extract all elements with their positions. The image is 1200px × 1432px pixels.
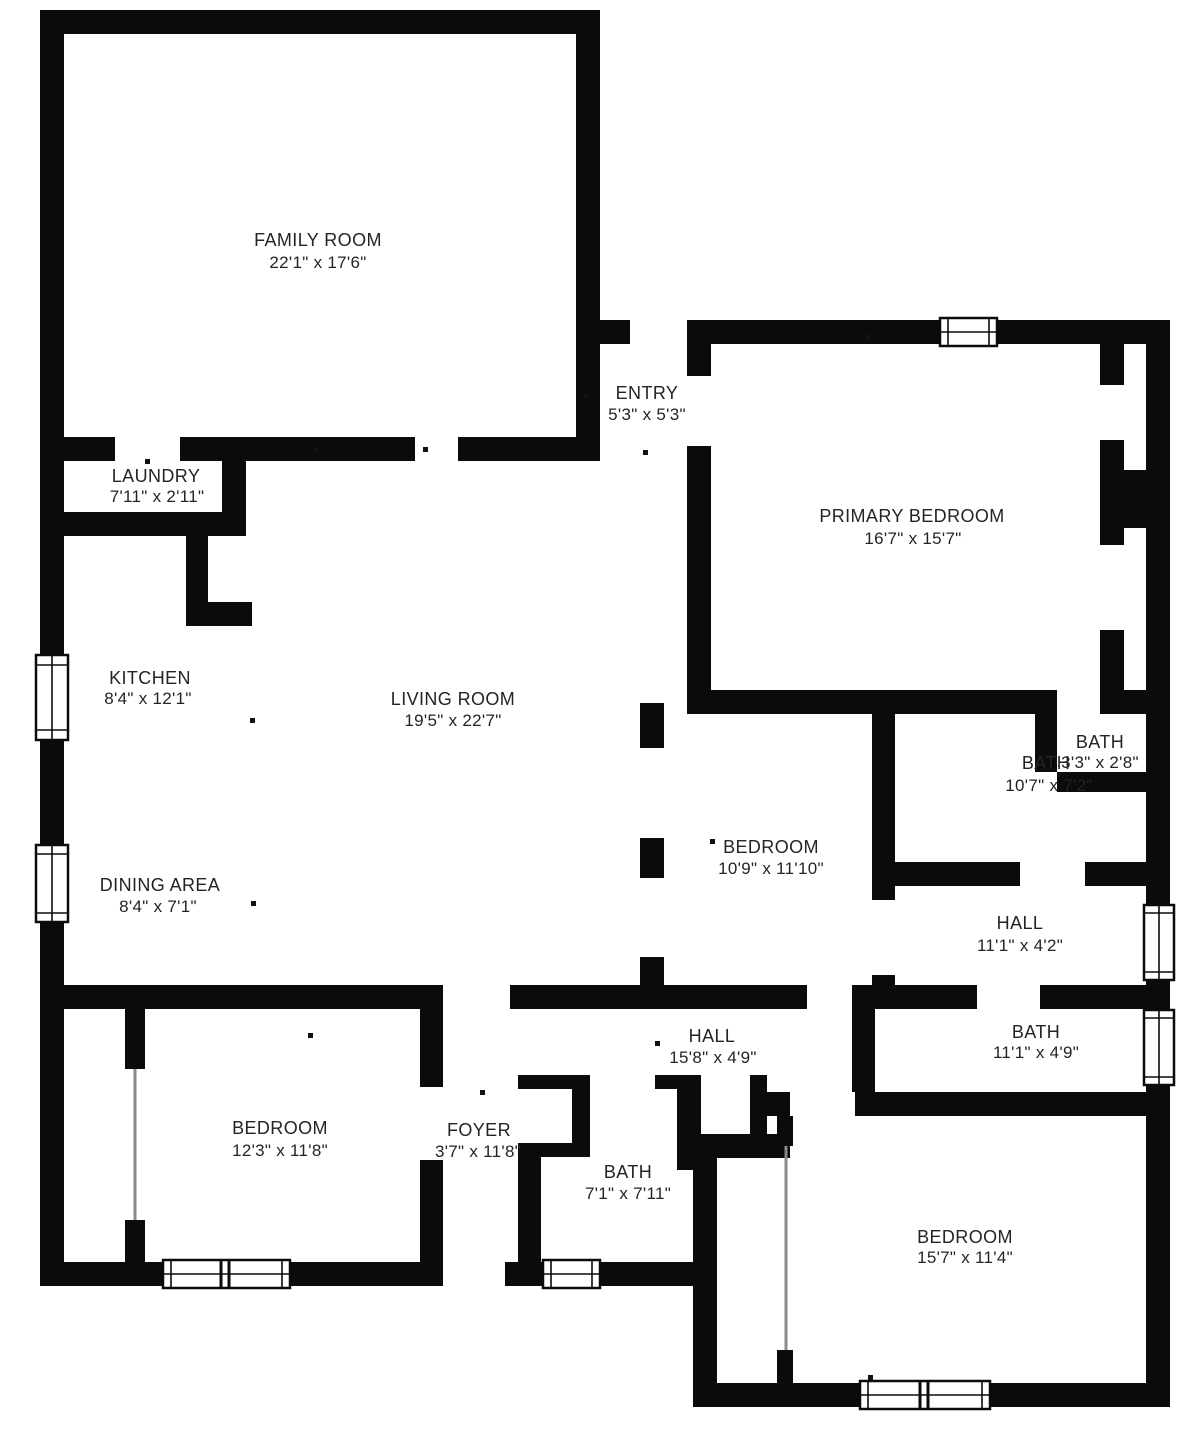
room-label-bath-hall: BATH 11'1" x 4'9" <box>993 1022 1079 1062</box>
window-symbol <box>1144 905 1174 980</box>
door-ticks <box>145 334 873 1380</box>
svg-text:BATH: BATH <box>1012 1022 1060 1042</box>
svg-text:10'7" x 7'2": 10'7" x 7'2" <box>1005 776 1092 795</box>
svg-text:15'8" x 4'9": 15'8" x 4'9" <box>669 1048 756 1067</box>
room-label-primary-bedroom: PRIMARY BEDROOM 16'7" x 15'7" <box>819 506 1004 548</box>
svg-text:7'11" x 2'11": 7'11" x 2'11" <box>110 487 205 506</box>
svg-text:15'7" x 11'4": 15'7" x 11'4" <box>917 1248 1013 1267</box>
room-label-bedroom-left: BEDROOM 12'3" x 11'8" <box>232 1118 328 1160</box>
floor-plan-canvas: FAMILY ROOM 22'1" x 17'6" ENTRY 5'3" x 5… <box>0 0 1200 1432</box>
svg-text:5'3" x 5'3": 5'3" x 5'3" <box>608 405 686 424</box>
svg-text:PRIMARY BEDROOM: PRIMARY BEDROOM <box>819 506 1004 526</box>
svg-text:FAMILY ROOM: FAMILY ROOM <box>254 230 382 250</box>
room-label-kitchen: KITCHEN 8'4" x 12'1" <box>104 668 191 708</box>
window-symbol <box>36 845 68 922</box>
svg-text:22'1" x 17'6": 22'1" x 17'6" <box>269 253 366 272</box>
room-label-hall-right: HALL 11'1" x 4'2" <box>977 913 1063 955</box>
svg-text:BEDROOM: BEDROOM <box>723 837 819 857</box>
window-symbol <box>543 1260 600 1288</box>
svg-text:11'1" x 4'2": 11'1" x 4'2" <box>977 936 1063 955</box>
svg-text:3'7" x 11'8": 3'7" x 11'8" <box>435 1142 521 1161</box>
floor-plan-page: FAMILY ROOM 22'1" x 17'6" ENTRY 5'3" x 5… <box>0 0 1200 1432</box>
svg-text:11'1" x 4'9": 11'1" x 4'9" <box>993 1043 1079 1062</box>
svg-text:BEDROOM: BEDROOM <box>232 1118 328 1138</box>
room-label-living-room: LIVING ROOM 19'5" x 22'7" <box>391 689 515 730</box>
window-symbol <box>1144 1010 1174 1085</box>
svg-text:16'7" x 15'7": 16'7" x 15'7" <box>864 529 961 548</box>
room-label-foyer: FOYER 3'7" x 11'8" <box>435 1120 521 1161</box>
svg-text:12'3" x 11'8": 12'3" x 11'8" <box>232 1141 328 1160</box>
svg-text:BEDROOM: BEDROOM <box>917 1227 1013 1247</box>
room-label-bedroom-middle: BEDROOM 10'9" x 11'10" <box>718 837 824 878</box>
svg-text:KITCHEN: KITCHEN <box>109 668 191 688</box>
svg-text:8'4" x 7'1": 8'4" x 7'1" <box>119 897 197 916</box>
room-label-hall-center: HALL 15'8" x 4'9" <box>669 1026 756 1067</box>
room-label-laundry: LAUNDRY 7'11" x 2'11" <box>110 466 205 506</box>
svg-text:ENTRY: ENTRY <box>616 383 679 403</box>
svg-text:10'9" x 11'10": 10'9" x 11'10" <box>718 859 824 878</box>
svg-text:HALL: HALL <box>689 1026 736 1046</box>
svg-text:19'5" x 22'7": 19'5" x 22'7" <box>404 711 501 730</box>
window-symbol <box>163 1260 290 1288</box>
room-label-entry: ENTRY 5'3" x 5'3" <box>608 383 686 424</box>
room-label-dining-area: DINING AREA 8'4" x 7'1" <box>100 875 220 916</box>
svg-text:BATH: BATH <box>604 1162 652 1182</box>
svg-text:8'4" x 12'1": 8'4" x 12'1" <box>104 689 191 708</box>
room-label-bedroom-right: BEDROOM 15'7" x 11'4" <box>917 1227 1013 1267</box>
svg-text:BATH: BATH <box>1076 732 1124 752</box>
svg-text:7'1" x 7'11": 7'1" x 7'11" <box>585 1184 671 1203</box>
window-symbol <box>36 655 68 740</box>
svg-text:FOYER: FOYER <box>447 1120 511 1140</box>
window-symbol <box>860 1381 990 1409</box>
room-label-family-room: FAMILY ROOM 22'1" x 17'6" <box>254 230 382 272</box>
svg-text:HALL: HALL <box>997 913 1044 933</box>
svg-text:LAUNDRY: LAUNDRY <box>112 466 201 486</box>
svg-text:DINING AREA: DINING AREA <box>100 875 220 895</box>
svg-text:LIVING ROOM: LIVING ROOM <box>391 689 515 709</box>
svg-text:3'3" x 2'8": 3'3" x 2'8" <box>1061 753 1139 772</box>
window-symbol <box>940 318 997 346</box>
room-label-bath-center: BATH 7'1" x 7'11" <box>585 1162 671 1203</box>
room-label-bath-small: BATH 3'3" x 2'8" <box>1061 732 1139 772</box>
svg-text:BATH: BATH <box>1022 753 1070 773</box>
